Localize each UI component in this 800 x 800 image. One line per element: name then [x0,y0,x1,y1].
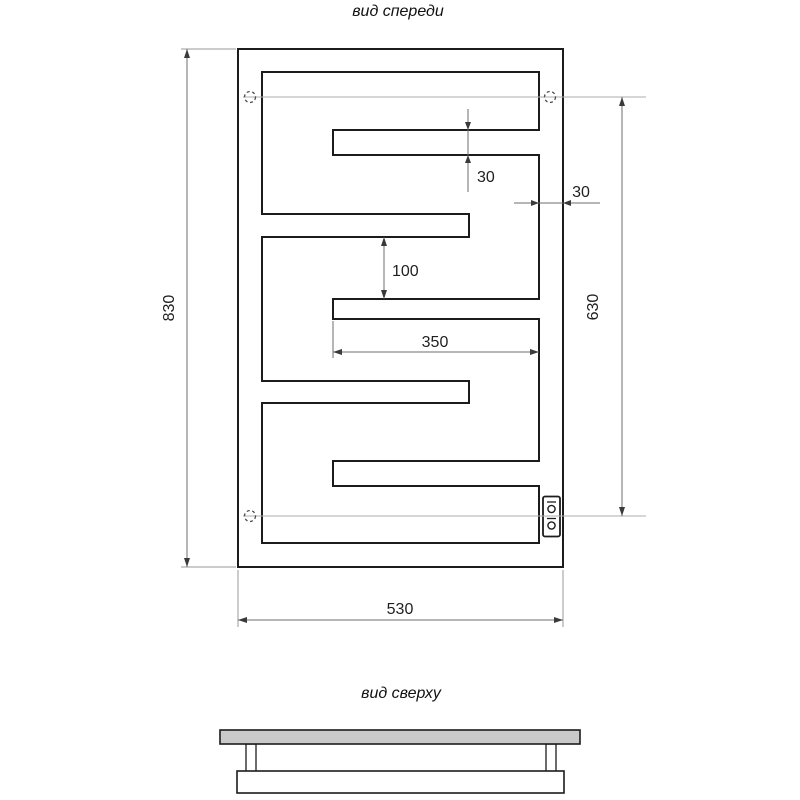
drawing-canvas: вид спереди 830 [0,0,800,800]
dim-overall-width: 530 [238,570,563,627]
dim-label-100: 100 [392,263,419,280]
dim-label-830: 830 [161,295,178,322]
standoff-post-right [546,744,556,772]
wall-bracket-rail [220,730,580,744]
terminal-circle-bottom [548,522,555,529]
arrowhead-up-icon [619,97,625,106]
top-view: вид сверху [220,685,580,793]
dim-label-30-gap: 30 [477,169,495,186]
arrowhead-down-icon [184,558,190,567]
dim-label-350: 350 [422,334,449,351]
terminal-circle-top [548,505,555,512]
panel-edge-profile [237,771,564,793]
arrowhead-right-icon [554,617,563,623]
arrowhead-up-icon [184,49,190,58]
drawing-page: вид спереди 830 [0,0,800,800]
arrowhead-down-icon [619,507,625,516]
arrowhead-left-icon [563,200,571,206]
standoff-post-left [246,744,256,772]
dim-label-630: 630 [585,294,602,321]
dim-label-30-margin: 30 [572,184,590,201]
dim-label-530: 530 [387,601,414,618]
arrowhead-left-icon [238,617,247,623]
dim-mount-span: 630 [585,97,625,516]
front-view: вид спереди 830 [161,3,646,627]
front-view-title: вид спереди [352,3,444,20]
top-view-title: вид сверху [361,685,442,702]
dim-overall-height: 830 [161,49,236,567]
